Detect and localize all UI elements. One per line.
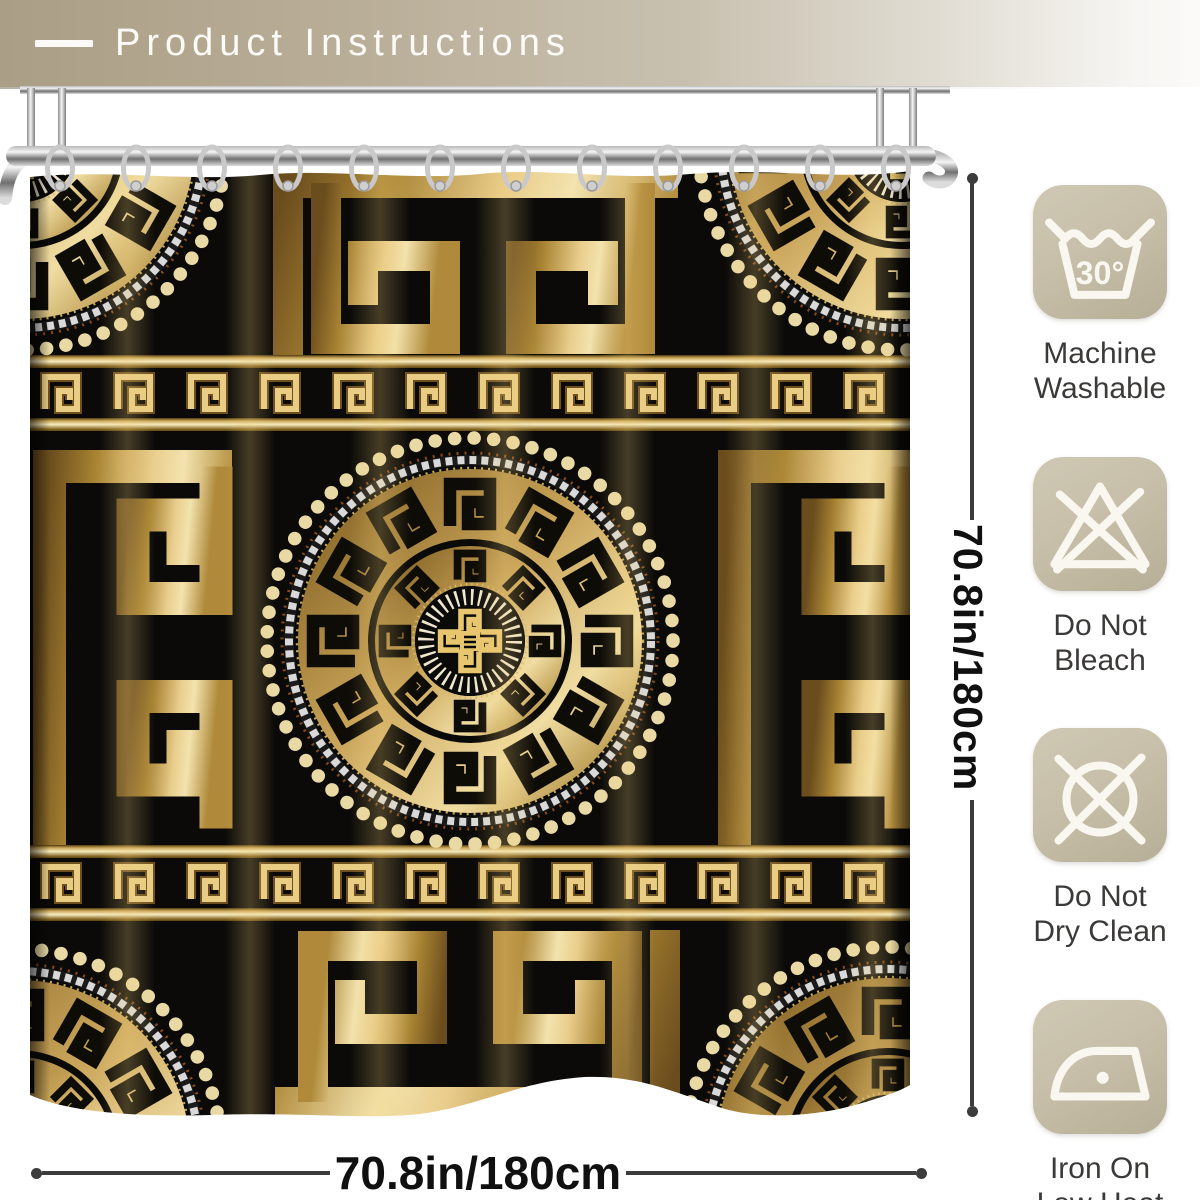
- rod-brackets: [27, 88, 917, 154]
- care-item-machine-washable: 30° MachineWashable: [1020, 185, 1180, 407]
- care-label: MachineWashable: [1020, 336, 1180, 407]
- care-item-do-not-dry-clean: Do NotDry Clean: [1020, 728, 1180, 950]
- crossed-triangle-icon: [1033, 457, 1167, 591]
- care-item-do-not-bleach: Do NotBleach: [1020, 457, 1180, 679]
- dimension-line: [626, 1171, 916, 1175]
- care-label: Iron OnLow Heat: [1020, 1151, 1180, 1200]
- dimension-dot: [916, 1168, 927, 1179]
- page-title: Product Instructions: [115, 22, 571, 65]
- shower-curtain-image: [30, 165, 910, 1120]
- crossed-circle-icon: [1033, 728, 1167, 862]
- header-band: Product Instructions: [0, 0, 1200, 87]
- dimension-line: [970, 800, 974, 1106]
- height-label: 70.8in/180cm: [944, 524, 991, 791]
- care-label: Do NotDry Clean: [1020, 879, 1180, 950]
- wash-tub-30-icon: 30°: [1033, 185, 1167, 319]
- svg-text:30°: 30°: [1076, 255, 1125, 291]
- dimension-dot: [31, 1168, 42, 1179]
- dimension-line: [42, 1171, 330, 1175]
- width-label: 70.8in/180cm: [330, 1146, 626, 1200]
- header-dash: [35, 40, 93, 47]
- care-label: Do NotBleach: [1020, 608, 1180, 679]
- curtain-rod-assembly: [0, 80, 1000, 220]
- care-item-iron-low-heat: Iron OnLow Heat: [1020, 1000, 1180, 1200]
- dimension-line: [970, 182, 974, 520]
- iron-one-dot-icon: [1033, 1000, 1167, 1134]
- product-instructions-page: Product Instructions: [0, 0, 1200, 1200]
- ceiling-bar: [20, 86, 950, 94]
- width-dimension: 70.8in/180cm: [0, 1146, 960, 1200]
- dimension-dot: [967, 1106, 978, 1117]
